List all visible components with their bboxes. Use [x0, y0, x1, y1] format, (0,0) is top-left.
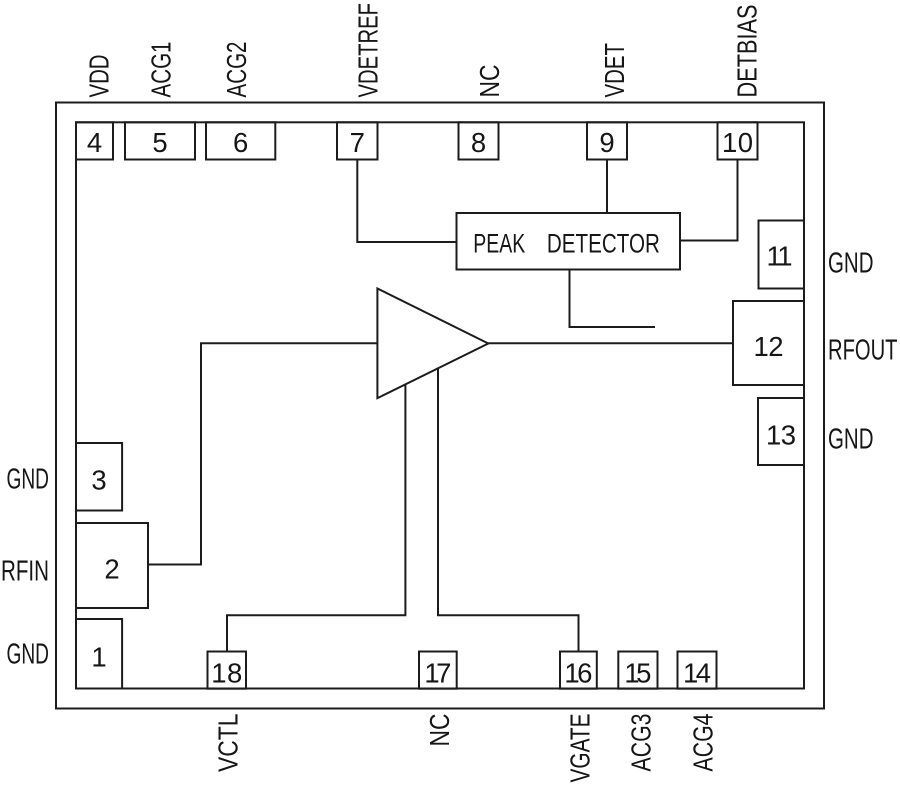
svg-text:9: 9	[599, 127, 614, 158]
svg-text:VDET: VDET	[599, 43, 630, 98]
svg-text:8: 8	[471, 127, 486, 158]
svg-text:11: 11	[767, 241, 793, 272]
svg-text:12: 12	[754, 331, 784, 362]
svg-text:PEAK: PEAK	[473, 229, 525, 259]
svg-text:10: 10	[722, 127, 753, 158]
svg-text:DETECTOR: DETECTOR	[547, 229, 660, 259]
svg-text:VDETREF: VDETREF	[353, 3, 384, 98]
svg-text:1: 1	[91, 642, 106, 673]
svg-text:2: 2	[104, 554, 119, 585]
svg-text:7: 7	[350, 127, 365, 158]
svg-text:RFOUT: RFOUT	[828, 335, 898, 367]
svg-text:5: 5	[152, 127, 167, 158]
svg-text:NC: NC	[424, 714, 455, 747]
svg-text:DETBIAS: DETBIAS	[732, 5, 763, 98]
svg-text:GND: GND	[828, 248, 874, 280]
svg-text:13: 13	[766, 420, 796, 451]
svg-text:GND: GND	[7, 464, 50, 496]
svg-text:15: 15	[624, 658, 651, 689]
svg-text:4: 4	[87, 127, 102, 158]
svg-text:ACG3: ACG3	[626, 714, 657, 772]
svg-text:GND: GND	[828, 423, 874, 455]
svg-text:ACG2: ACG2	[221, 42, 252, 98]
svg-text:6: 6	[233, 127, 248, 158]
svg-text:14: 14	[683, 658, 711, 689]
svg-text:3: 3	[91, 465, 106, 496]
svg-text:ACG4: ACG4	[688, 714, 719, 772]
svg-text:NC: NC	[474, 65, 505, 98]
svg-text:RFIN: RFIN	[1, 555, 49, 587]
svg-text:GND: GND	[7, 639, 50, 671]
svg-text:ACG1: ACG1	[146, 42, 177, 98]
svg-text:VDD: VDD	[84, 55, 115, 98]
svg-text:17: 17	[424, 658, 451, 689]
svg-text:VGATE: VGATE	[565, 714, 596, 783]
svg-text:16: 16	[564, 658, 592, 689]
svg-text:18: 18	[211, 658, 242, 689]
svg-text:VCTL: VCTL	[213, 714, 244, 773]
